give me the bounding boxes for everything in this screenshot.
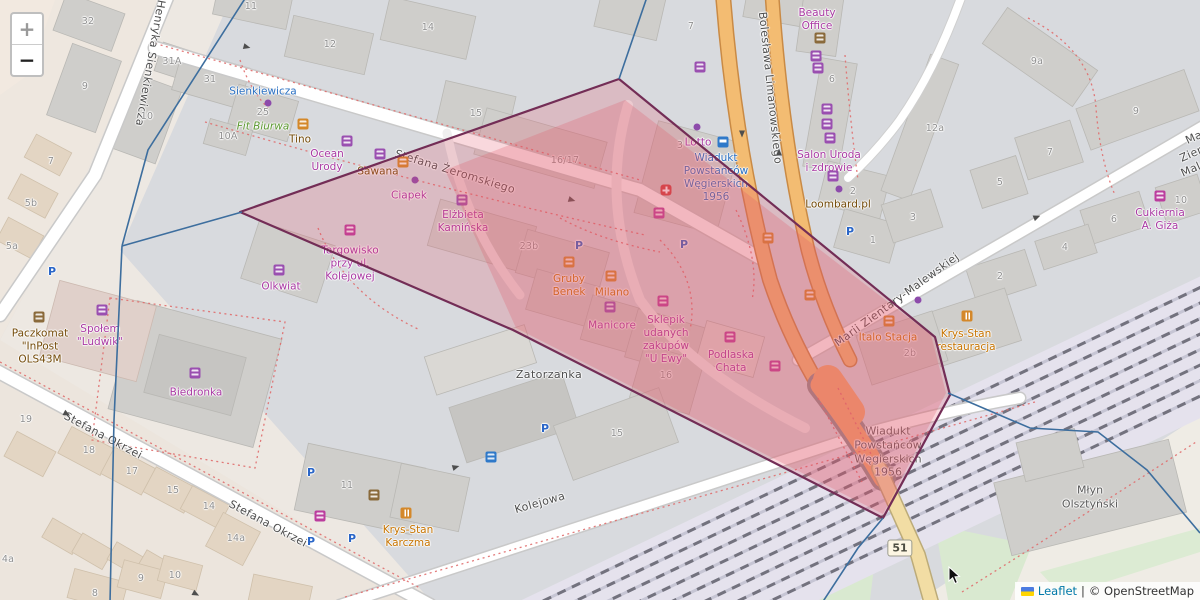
voronoi-boundary-line (122, 0, 246, 246)
voronoi-boundary-line (822, 518, 883, 600)
leaflet-link[interactable]: Leaflet (1038, 584, 1077, 598)
voronoi-boundary-line (110, 246, 122, 600)
vector-overlays (0, 0, 1200, 600)
attribution-separator: | (1081, 584, 1085, 598)
route-shield-51: 51 (887, 540, 912, 557)
voronoi-boundary-line (619, 0, 647, 79)
zoom-out-button[interactable]: − (12, 45, 42, 75)
zoom-in-button[interactable]: + (12, 14, 42, 45)
ukraine-flag-icon (1021, 587, 1034, 596)
voronoi-boundary-line (122, 212, 242, 246)
voronoi-boundary-line (948, 393, 1200, 533)
highlight-region-inner-polygon (445, 100, 946, 514)
leaflet-map[interactable]: Henryka SienkiewiczaStefana ŻeromskiegoB… (0, 0, 1200, 600)
osm-attribution: © OpenStreetMap (1089, 584, 1194, 598)
zoom-control: + − (10, 12, 44, 77)
attribution-bar: Leaflet | © OpenStreetMap (1015, 582, 1200, 600)
